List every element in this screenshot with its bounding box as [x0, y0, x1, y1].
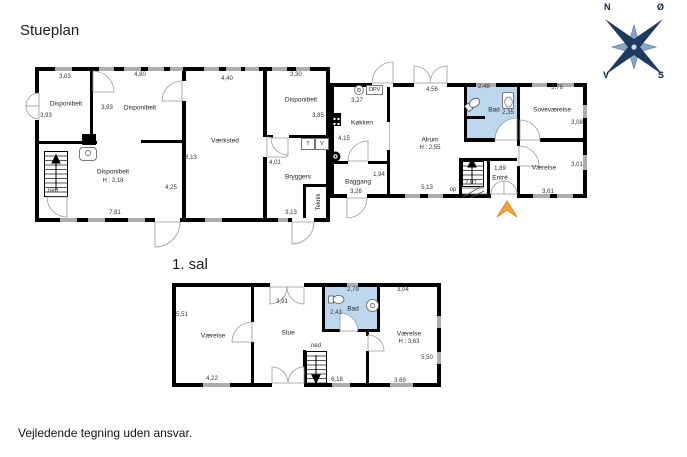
room-label-disponibelt-tl: Disponibelt — [50, 100, 82, 107]
dim-label: 5,50 — [421, 355, 433, 361]
toilet-icon — [328, 293, 345, 311]
dryer-label: T — [306, 141, 309, 147]
compass-south-label: S — [658, 70, 664, 80]
kitchen-sink-drain-icon — [357, 88, 361, 92]
room-label-disponibelt-mid: Disponibelt — [124, 104, 156, 111]
door-arc — [519, 146, 539, 166]
ceiling-height-label: H : 3,63 — [398, 339, 419, 345]
compass-west-label: V — [603, 70, 609, 80]
dim-label: 5,51 — [176, 312, 188, 318]
dim-label: 1,89 — [494, 166, 506, 172]
door-arc — [47, 197, 67, 217]
room-label-stue: Stue — [281, 329, 294, 336]
dim-label: 2,79 — [347, 287, 359, 293]
dim-label: 5,13 — [421, 185, 433, 191]
shower-drain-icon — [370, 303, 375, 308]
dim-label: 4,25 — [165, 185, 177, 191]
door-arc — [504, 181, 517, 194]
dim-label: 4,40 — [221, 76, 233, 82]
washer-label: V — [320, 141, 324, 147]
dim-label: 7,81 — [109, 210, 121, 216]
stairs-up-label: op — [450, 187, 457, 193]
door-arc — [430, 66, 447, 83]
dryer-box: T — [301, 138, 315, 150]
door-arc — [491, 181, 504, 194]
door-arcs-overlay — [0, 0, 687, 457]
extractor-fan-icon — [330, 149, 341, 167]
floorplan-canvas: Stueplan 1. sal Vejledende tegning uden … — [0, 0, 687, 457]
room-label-vaerksted: Værksted — [211, 137, 239, 144]
room-label-entre: Entré — [492, 174, 508, 181]
door-arc — [368, 335, 384, 351]
door-arc — [520, 120, 540, 140]
door-arc — [272, 367, 288, 383]
door-arc — [288, 367, 304, 383]
dim-label: 4,22 — [206, 376, 218, 382]
dim-label: 6,18 — [331, 377, 343, 383]
door-arc — [162, 81, 182, 101]
stair-direction-arrows — [52, 155, 476, 383]
wood-stove-ring-icon — [85, 150, 91, 156]
dim-label: 3,04 — [397, 287, 409, 293]
ceiling-height-label: H : 2,55 — [419, 145, 440, 151]
room-label-vaerelse-first-right: Værelse — [397, 330, 421, 337]
door-arc — [155, 222, 180, 247]
room-label-bryggers: Bryggers — [285, 173, 311, 180]
compass-east-label: Ø — [657, 2, 664, 12]
dishwasher-box: OPV — [366, 85, 383, 95]
dim-label: 3,30 — [290, 72, 302, 78]
door-arc — [372, 62, 393, 83]
winder-stairs-lines — [462, 186, 487, 198]
stairs-down-label: ned — [311, 343, 321, 349]
dim-label: 2,35 — [502, 110, 514, 116]
chimney-icon — [82, 134, 96, 145]
dim-label: 3,03 — [59, 74, 71, 80]
dim-label: 4,01 — [269, 160, 281, 166]
room-label-vaerelse-first-left: Værelse — [201, 332, 225, 339]
dim-label: 3,93 — [101, 105, 113, 111]
entrance-arrow-icon — [497, 201, 517, 217]
room-label-disponibelt-tr: Disponibelt — [285, 96, 317, 103]
dim-label: 3,27 — [351, 98, 363, 104]
dim-label: 3,08 — [571, 120, 583, 126]
door-arc — [232, 322, 252, 342]
room-label-vaerelse-ground: Værelse — [532, 164, 556, 171]
door-arc — [26, 106, 39, 119]
room-label-teknik: Teknik — [316, 193, 322, 210]
dim-label: 3,01 — [571, 162, 583, 168]
stove-burners-icon — [332, 114, 341, 132]
dim-label: 4,56 — [426, 87, 438, 93]
stairs-down-label: ned — [48, 188, 58, 194]
room-label-bad-ground: Bad — [488, 106, 500, 113]
dim-label: 2,43 — [330, 310, 342, 316]
room-label-baggang: Baggang — [345, 178, 371, 185]
door-arc — [348, 141, 368, 161]
dim-label: 3,61 — [542, 189, 554, 195]
door-arc — [26, 93, 39, 106]
door-arc — [347, 198, 367, 218]
door-arc — [292, 222, 314, 244]
dishwasher-label: OPV — [369, 87, 381, 93]
washer-box: V — [315, 138, 329, 150]
door-arc — [340, 313, 358, 331]
dim-label: 2,01 — [465, 180, 477, 186]
dim-label: 2,48 — [478, 84, 490, 90]
dim-label: 3,26 — [350, 189, 362, 195]
room-label-alrum: Alrum — [422, 136, 439, 143]
room-label-disponibelt-big: Disponibelt — [97, 168, 129, 175]
ceiling-height-label: H : 2,18 — [102, 178, 123, 184]
dim-label: 3,85 — [312, 113, 324, 119]
door-arc — [287, 287, 304, 304]
dim-label: 8,13 — [185, 155, 197, 161]
door-arc — [495, 118, 517, 140]
dim-label: 3,76 — [551, 85, 563, 91]
dim-label: 1,94 — [373, 172, 385, 178]
door-arc — [414, 66, 431, 83]
room-label-koekken: Køkken — [351, 119, 373, 126]
room-label-sovevaerelse: Soveværelse — [533, 106, 571, 113]
dim-label: 4,80 — [134, 72, 146, 78]
room-label-bad-first: Bad — [347, 305, 359, 312]
compass-rose-icon: N Ø S V — [595, 4, 675, 90]
dim-label: 3,91 — [276, 299, 288, 305]
dim-label: 3,69 — [394, 378, 406, 384]
dim-label: 3,13 — [285, 210, 297, 216]
compass-north-label: N — [604, 2, 611, 12]
dim-label: 4,15 — [338, 136, 350, 142]
dim-label: 3,93 — [40, 113, 52, 119]
door-arc — [93, 71, 114, 92]
